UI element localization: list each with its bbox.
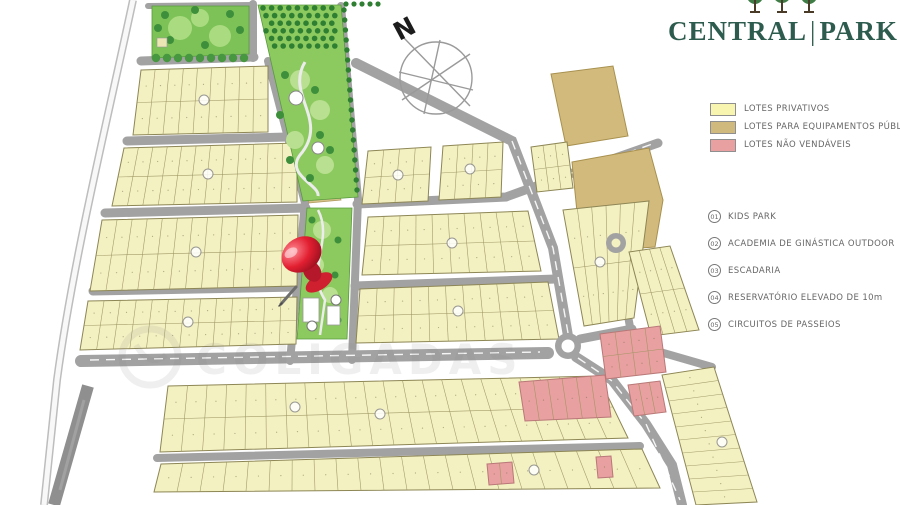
block-number-marker [393, 170, 403, 180]
block-number-marker [375, 409, 385, 419]
compass-north-label: N [388, 11, 420, 46]
street-tree-icon [174, 54, 182, 62]
block-number-marker [203, 169, 213, 179]
street-tree-icon [163, 54, 171, 62]
amenity-list: 01 KIDS PARK 02 ACADEMIA DE GINÁSTICA OU… [708, 210, 895, 345]
block-number-marker [183, 317, 193, 327]
amenity-number-badge: 04 [708, 291, 721, 304]
brand-divider: | [807, 16, 819, 46]
street-tree-icon [218, 54, 226, 62]
legend-label: LOTES PARA EQUIPAMENTOS PÚBLICOS [744, 122, 900, 132]
amenity-number-badge: 01 [708, 210, 721, 223]
amenity-label: KIDS PARK [728, 212, 776, 222]
legend-item-private-lots: LOTES PRIVATIVOS [710, 103, 900, 115]
amenity-stairway: 03 ESCADARIA [708, 264, 895, 277]
block-number-marker [453, 306, 463, 316]
legend-label: LOTES PRIVATIVOS [744, 104, 830, 114]
street-tree-icon [207, 54, 215, 62]
brand-name-right: PARK [819, 16, 898, 46]
block-number-marker [529, 465, 539, 475]
street-tree-icon [229, 54, 237, 62]
block-number-marker [290, 402, 300, 412]
amenity-label: ESCADARIA [728, 266, 781, 276]
brand-wordmark: CENTRAL|PARK [668, 16, 896, 46]
legend-swatch-private [710, 103, 736, 116]
amenity-label: CIRCUITOS DE PASSEIOS [728, 320, 841, 330]
amenity-label: ACADEMIA DE GINÁSTICA OUTDOOR [728, 239, 895, 249]
cul-de-sac [606, 233, 626, 253]
street-tree-icon [240, 54, 248, 62]
public-equipment-lot [551, 66, 628, 146]
legend-item-public-equipment-lots: LOTES PARA EQUIPAMENTOS PÚBLICOS [710, 121, 900, 133]
street-tree-icon [152, 54, 160, 62]
block-number-marker [199, 95, 209, 105]
block-number-marker [465, 164, 475, 174]
brand-logo: CENTRAL|PARK [668, 0, 896, 46]
amenity-number-badge: 03 [708, 264, 721, 277]
block-number-marker [191, 247, 201, 257]
logo-trees-icon [668, 0, 896, 16]
map-legend: LOTES PRIVATIVOS LOTES PARA EQUIPAMENTOS… [710, 103, 900, 157]
legend-swatch-public [710, 121, 736, 134]
roundabout [555, 333, 581, 359]
legend-swatch-nonsellable [710, 139, 736, 152]
amenity-outdoor-gym: 02 ACADEMIA DE GINÁSTICA OUTDOOR [708, 237, 895, 250]
street-tree-icon [185, 54, 193, 62]
amenity-walking-circuits: 05 CIRCUITOS DE PASSEIOS [708, 318, 895, 331]
amenity-water-tower: 04 RESERVATÓRIO ELEVADO DE 10m [708, 291, 895, 304]
amenity-number-badge: 02 [708, 237, 721, 250]
block-number-marker [447, 238, 457, 248]
legend-item-non-sellable-lots: LOTES NÃO VENDÁVEIS [710, 139, 900, 151]
watermark-text: COLIGADAS [196, 335, 524, 384]
block-number-marker [595, 257, 605, 267]
amenity-label: RESERVATÓRIO ELEVADO DE 10m [728, 293, 883, 303]
brand-name-left: CENTRAL [668, 16, 807, 46]
amenity-kids-park: 01 KIDS PARK [708, 210, 895, 223]
site-plan-page: COLIGADAS N [0, 0, 900, 505]
amenity-number-badge: 05 [708, 318, 721, 331]
street-tree-icon [196, 54, 204, 62]
block-number-marker [717, 437, 727, 447]
legend-label: LOTES NÃO VENDÁVEIS [744, 140, 851, 150]
